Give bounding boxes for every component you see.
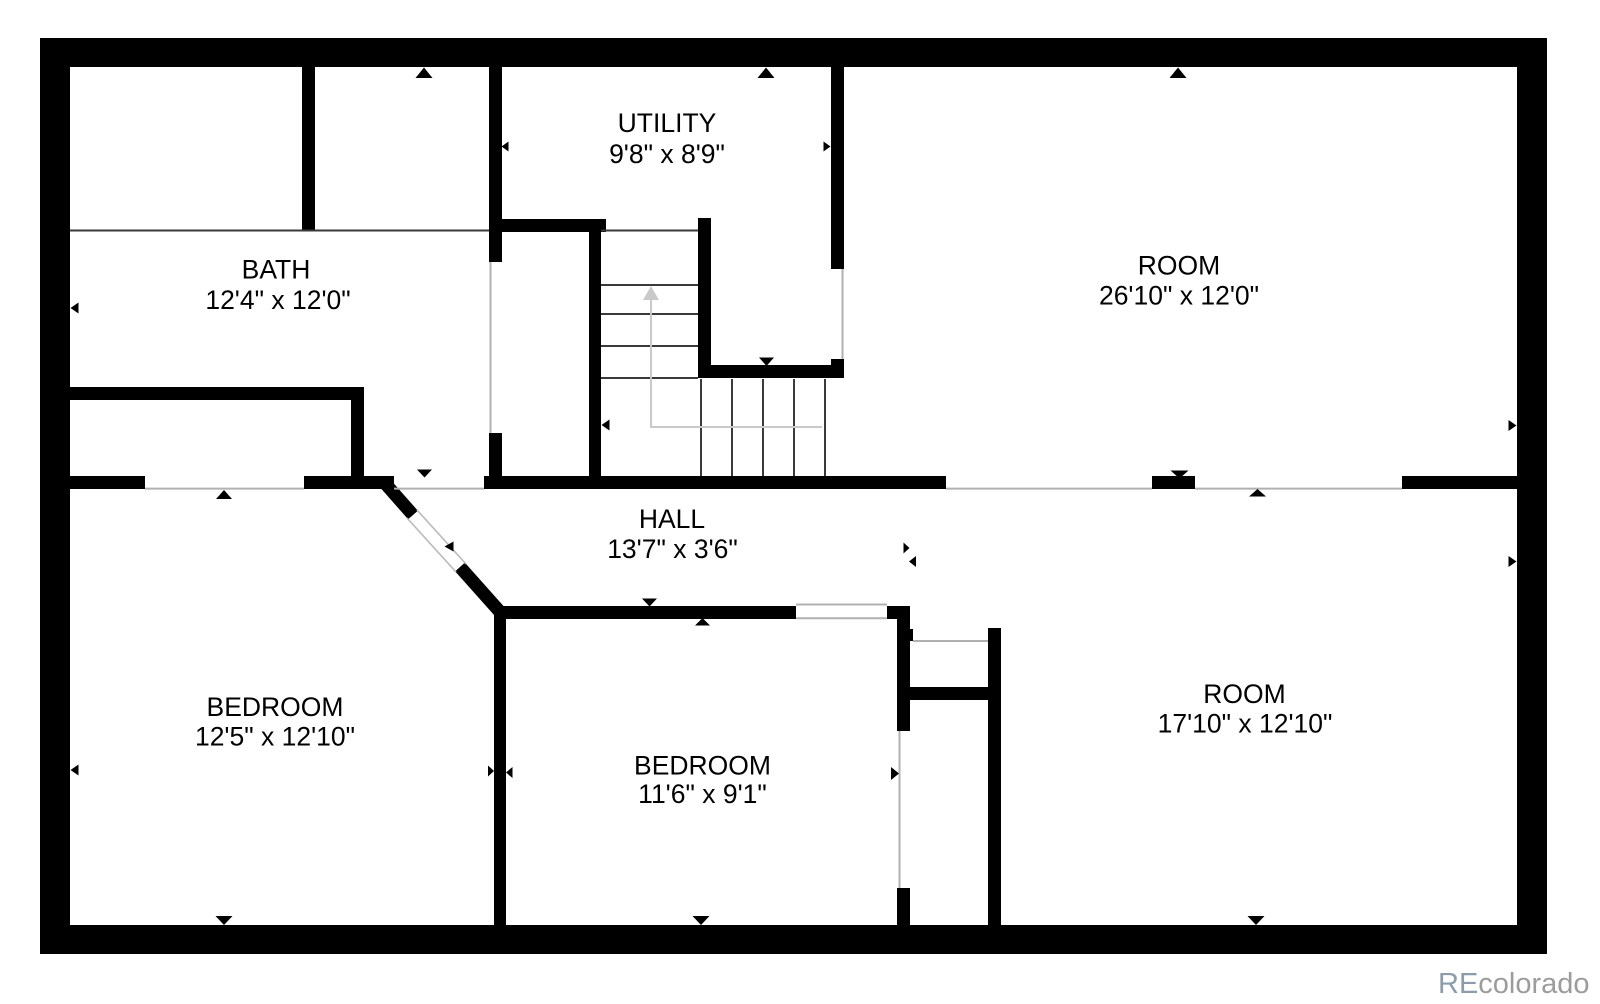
svg-text:REcolorado: REcolorado: [1438, 968, 1590, 1000]
svg-text:BEDROOM: BEDROOM: [207, 692, 344, 722]
svg-text:HALL: HALL: [639, 504, 705, 534]
svg-text:ROOM: ROOM: [1138, 250, 1220, 280]
svg-text:11'6" x 9'1": 11'6" x 9'1": [638, 779, 767, 809]
svg-text:12'4" x 12'0": 12'4" x 12'0": [205, 285, 350, 315]
svg-text:UTILITY: UTILITY: [618, 108, 717, 138]
svg-text:9'8" x 8'9": 9'8" x 8'9": [609, 139, 725, 169]
svg-text:ROOM: ROOM: [1203, 679, 1285, 709]
svg-text:13'7" x 3'6": 13'7" x 3'6": [607, 534, 738, 564]
svg-text:17'10" x 12'10": 17'10" x 12'10": [1158, 709, 1333, 739]
svg-text:BATH: BATH: [242, 255, 311, 285]
svg-text:BEDROOM: BEDROOM: [634, 751, 771, 781]
svg-text:12'5" x 12'10": 12'5" x 12'10": [195, 721, 355, 751]
svg-text:26'10" x 12'0": 26'10" x 12'0": [1099, 281, 1259, 311]
